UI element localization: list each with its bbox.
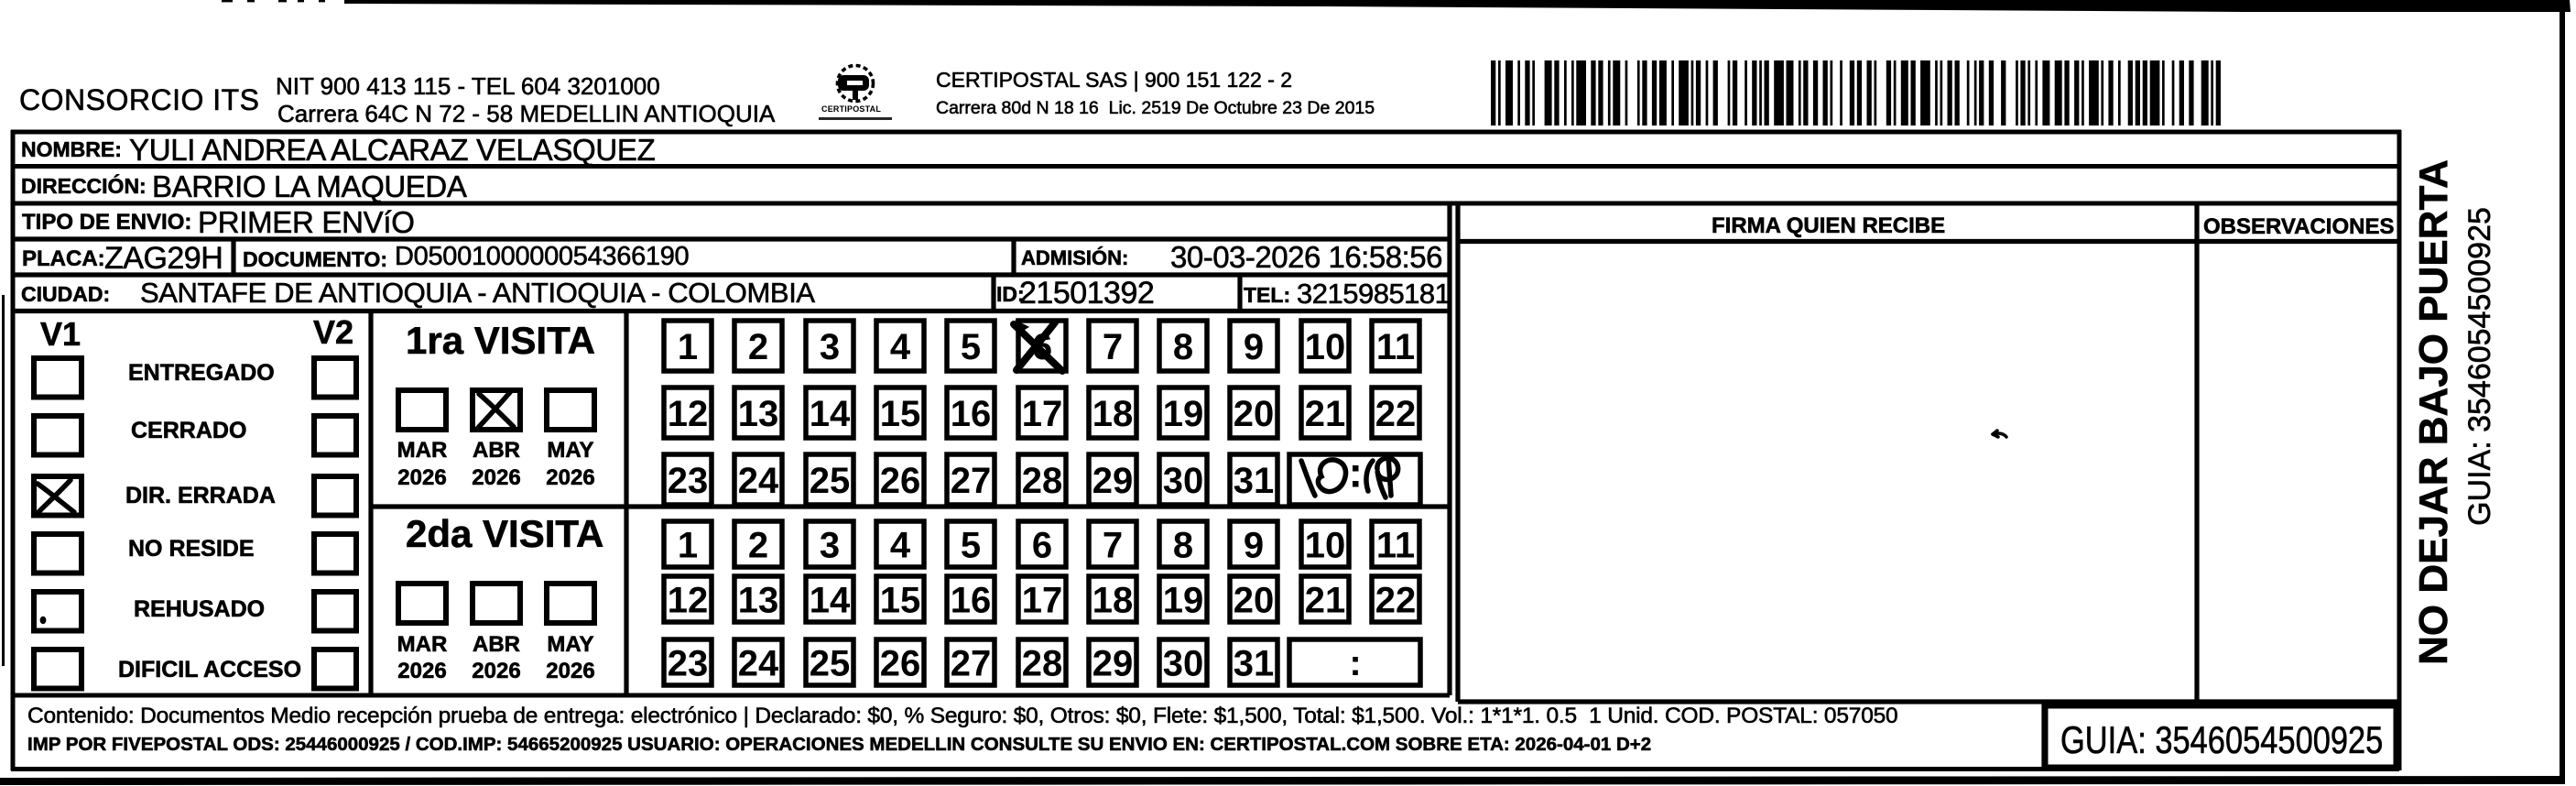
svg-text:13: 13 (738, 394, 779, 434)
svg-text:13: 13 (738, 581, 779, 621)
svg-text:30: 30 (1163, 461, 1204, 501)
svg-text:14: 14 (810, 581, 851, 621)
svg-text:16: 16 (951, 394, 992, 434)
svg-text:4: 4 (890, 526, 911, 566)
svg-text:3: 3 (820, 526, 840, 566)
svg-text:7: 7 (1103, 526, 1123, 566)
svg-text:CERTIPOSTAL: CERTIPOSTAL (821, 104, 881, 114)
svg-text:12: 12 (668, 581, 709, 621)
svg-text:21: 21 (1305, 394, 1346, 434)
svg-text:18: 18 (1092, 581, 1134, 621)
svg-text:11: 11 (1376, 526, 1415, 566)
svg-text:10: 10 (1305, 327, 1346, 367)
svg-text:20: 20 (1234, 394, 1275, 434)
svg-text:1: 1 (678, 526, 698, 566)
svg-text:10: 10 (1305, 526, 1346, 566)
svg-text:5: 5 (961, 526, 981, 566)
svg-text:21: 21 (1305, 581, 1346, 621)
svg-text:26: 26 (880, 644, 921, 684)
svg-text:31: 31 (1234, 644, 1275, 684)
svg-text:24: 24 (738, 644, 779, 684)
svg-text:23: 23 (668, 644, 709, 684)
svg-text:29: 29 (1092, 644, 1134, 684)
svg-text:11: 11 (1376, 327, 1415, 367)
svg-text:19: 19 (1163, 394, 1204, 434)
svg-text:25: 25 (810, 461, 851, 501)
svg-text:15: 15 (880, 581, 921, 621)
svg-text:18: 18 (1092, 394, 1134, 434)
svg-text:2: 2 (748, 327, 768, 367)
svg-text:5: 5 (961, 327, 981, 367)
svg-text:9: 9 (1244, 327, 1264, 367)
svg-text:17: 17 (1022, 581, 1063, 621)
svg-text:6: 6 (1032, 526, 1052, 566)
svg-text:2: 2 (748, 526, 768, 566)
svg-text:24: 24 (738, 461, 779, 501)
svg-text:19: 19 (1163, 581, 1204, 621)
svg-text:15: 15 (880, 394, 921, 434)
svg-text:8: 8 (1173, 526, 1193, 566)
svg-text:17: 17 (1022, 394, 1063, 434)
svg-text:16: 16 (951, 581, 992, 621)
svg-text:9: 9 (1244, 526, 1264, 566)
svg-text:12: 12 (668, 394, 709, 434)
svg-text:4: 4 (890, 327, 911, 367)
svg-text:1: 1 (678, 327, 698, 367)
svg-text:7: 7 (1103, 327, 1123, 367)
svg-text:25: 25 (810, 644, 851, 684)
svg-text:29: 29 (1092, 461, 1134, 501)
svg-text:28: 28 (1022, 644, 1063, 684)
svg-text::: : (1349, 643, 1361, 683)
svg-text:22: 22 (1375, 394, 1417, 434)
svg-text:20: 20 (1234, 581, 1275, 621)
svg-text:31: 31 (1234, 461, 1275, 501)
svg-text:3: 3 (820, 327, 840, 367)
svg-text:30: 30 (1163, 644, 1204, 684)
svg-text:14: 14 (810, 394, 851, 434)
svg-text:22: 22 (1375, 581, 1417, 621)
svg-text:28: 28 (1022, 461, 1063, 501)
svg-text:27: 27 (951, 461, 992, 501)
svg-text:26: 26 (880, 461, 921, 501)
svg-text:8: 8 (1173, 327, 1193, 367)
svg-text:23: 23 (668, 461, 709, 501)
svg-text:27: 27 (951, 644, 992, 684)
